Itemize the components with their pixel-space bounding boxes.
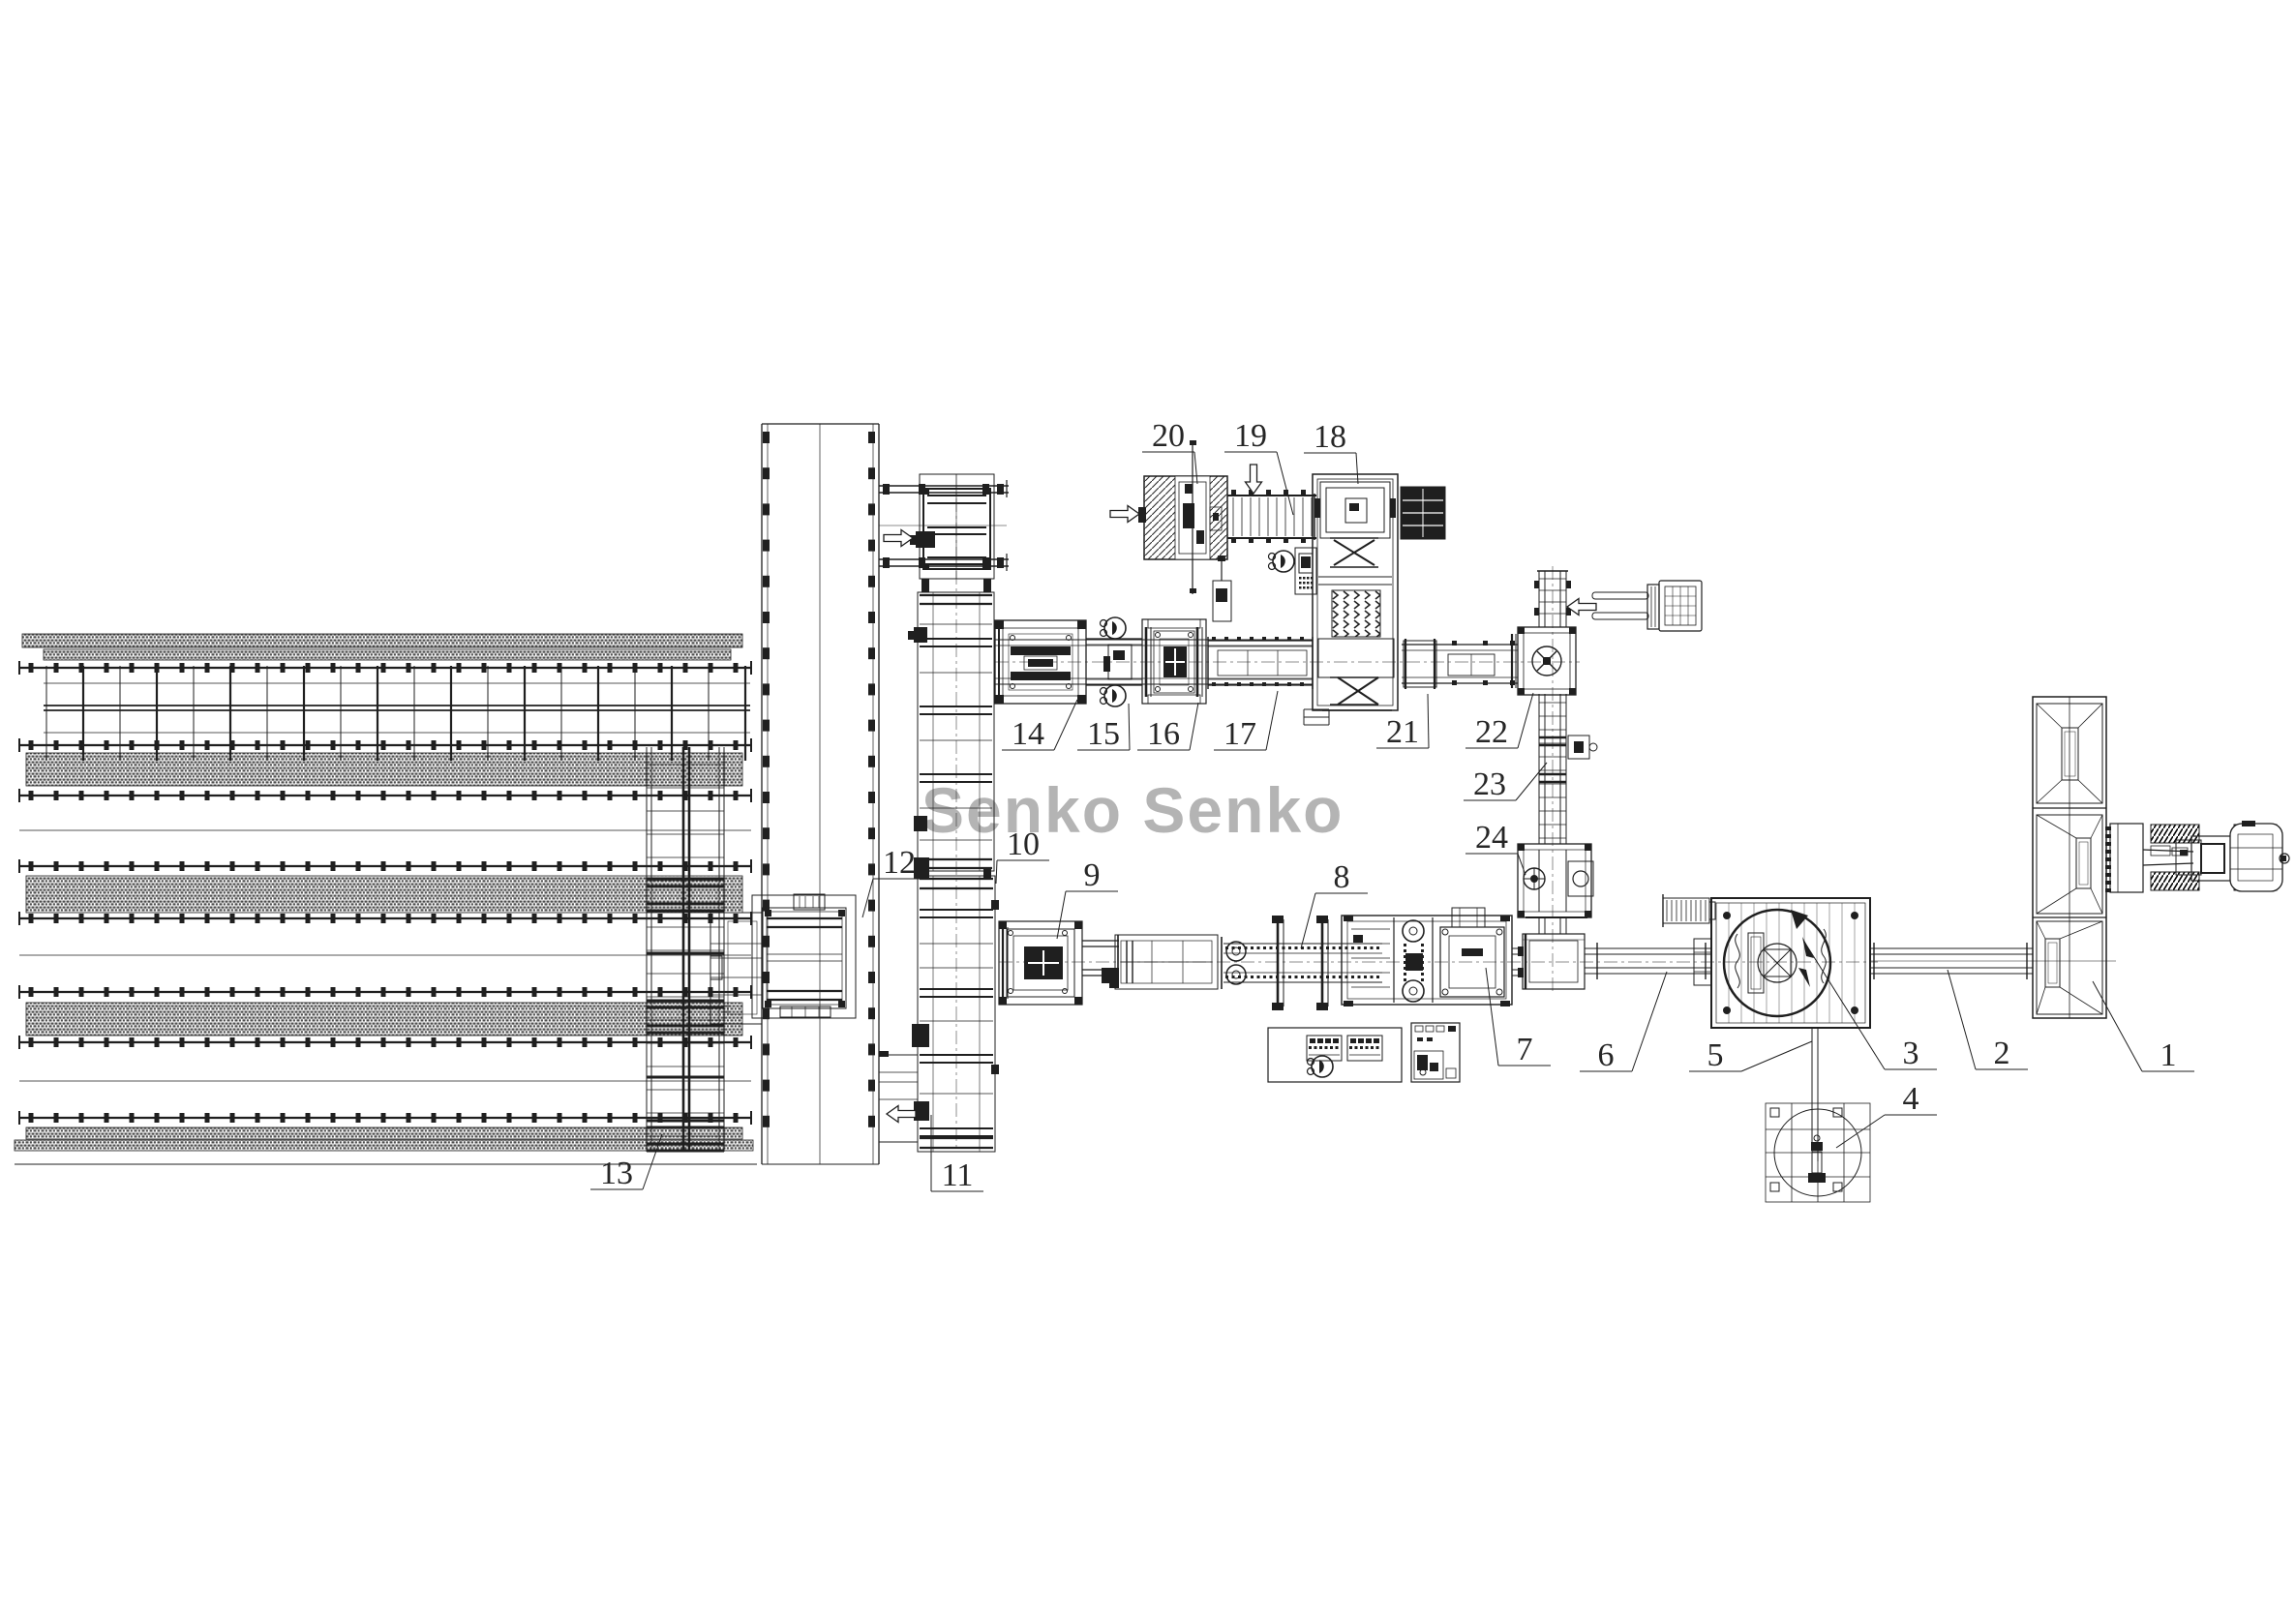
callout-20: 20 bbox=[1142, 418, 1197, 484]
machine-9 bbox=[999, 921, 1119, 1005]
callout-number: 21 bbox=[1386, 714, 1419, 750]
flow-arrow-icon bbox=[1110, 506, 1139, 523]
callout-number: 3 bbox=[1903, 1036, 1919, 1071]
machine-16 bbox=[1142, 619, 1206, 704]
callout-number: 9 bbox=[1084, 857, 1101, 893]
callout-number: 19 bbox=[1234, 418, 1267, 454]
rotary-transfer-22 bbox=[1512, 627, 1576, 695]
machine-7 bbox=[1342, 908, 1523, 1006]
callout-14: 14 bbox=[1002, 700, 1077, 752]
flow-arrow-icon bbox=[887, 1106, 916, 1123]
callout-number: 22 bbox=[1475, 714, 1508, 750]
conveyor-21 bbox=[1402, 639, 1518, 689]
factory-layout-drawing: 123456789101112131415161718192021222324 bbox=[0, 0, 2296, 1622]
operator-icon bbox=[1101, 617, 1127, 639]
storage-warehouse bbox=[15, 634, 757, 1164]
discharge-box bbox=[879, 1051, 918, 1142]
flow-arrow-icon bbox=[1246, 465, 1262, 494]
rack-piece bbox=[1663, 894, 1715, 927]
callout-17: 17 bbox=[1214, 691, 1278, 752]
pallet-segment bbox=[1115, 935, 1218, 989]
callout-number: 5 bbox=[1707, 1037, 1724, 1073]
control-pedestal bbox=[1213, 556, 1231, 621]
east-transfer-line bbox=[1402, 566, 1702, 995]
callout-21: 21 bbox=[1376, 694, 1429, 750]
callout-5: 5 bbox=[1689, 1037, 1812, 1073]
plc-cabinet bbox=[1411, 1023, 1460, 1082]
operator-icon bbox=[1269, 551, 1295, 572]
callout-23: 23 bbox=[1464, 763, 1547, 802]
callout-number: 4 bbox=[1903, 1081, 1919, 1117]
callout-number: 12 bbox=[883, 845, 916, 881]
callout-2: 2 bbox=[1948, 970, 2028, 1071]
process-row-lower bbox=[999, 908, 1878, 1010]
flow-arrow-icon bbox=[884, 530, 913, 547]
machine-18-aux-black-unit bbox=[1401, 487, 1445, 539]
aisle-corridor bbox=[762, 424, 879, 1164]
callout-24: 24 bbox=[1465, 820, 1526, 875]
vertical-conveyor-10-11 bbox=[879, 474, 1009, 1152]
callout-number: 6 bbox=[1598, 1037, 1615, 1073]
callout-19: 19 bbox=[1224, 418, 1293, 515]
infeed-cell-top bbox=[1138, 440, 1445, 725]
callout-number: 2 bbox=[1994, 1036, 2010, 1071]
callout-number: 11 bbox=[942, 1157, 974, 1193]
callout-number: 14 bbox=[1012, 716, 1044, 752]
callout-labels: 123456789101112131415161718192021222324 bbox=[590, 418, 2194, 1193]
machine-24 bbox=[1518, 844, 1593, 934]
forklift-icon bbox=[1592, 581, 1702, 631]
callout-number: 17 bbox=[1224, 716, 1256, 752]
callout-16: 16 bbox=[1137, 703, 1198, 752]
callout-11: 11 bbox=[931, 1115, 983, 1193]
machine-20 bbox=[1138, 440, 1227, 594]
roller-conveyor-19 bbox=[1227, 490, 1316, 543]
callout-number: 23 bbox=[1473, 766, 1506, 802]
callout-number: 10 bbox=[1007, 826, 1040, 862]
operators bbox=[1101, 551, 1334, 1077]
callout-number: 7 bbox=[1517, 1032, 1533, 1067]
callout-number: 16 bbox=[1147, 716, 1180, 752]
callout-4: 4 bbox=[1836, 1081, 1937, 1148]
transfer-column-13 bbox=[647, 747, 724, 1152]
machine-18 bbox=[1313, 474, 1398, 710]
vertical-conveyor-23 bbox=[1539, 566, 1597, 995]
flow-arrow-icon bbox=[1567, 599, 1596, 616]
callout-10: 10 bbox=[996, 826, 1049, 884]
callout-number: 20 bbox=[1152, 418, 1185, 454]
callout-1: 1 bbox=[2093, 981, 2194, 1073]
callout-15: 15 bbox=[1077, 704, 1130, 752]
chain-conveyor-8 bbox=[1222, 916, 1382, 1010]
process-row-upper bbox=[995, 556, 1580, 704]
rack-grid bbox=[44, 666, 750, 761]
callout-6: 6 bbox=[1580, 972, 1667, 1073]
hopper-bins bbox=[2033, 697, 2106, 1018]
operator-icon bbox=[1308, 1056, 1334, 1077]
cad-layout-canvas: Senko Senko 1234567891011121314151617181… bbox=[0, 0, 2296, 1622]
callout-number: 18 bbox=[1314, 419, 1346, 455]
corner-transfer bbox=[1518, 934, 1585, 989]
callout-number: 24 bbox=[1475, 820, 1508, 856]
callout-22: 22 bbox=[1465, 693, 1533, 750]
operator-icon bbox=[1101, 685, 1127, 706]
conveyor-17 bbox=[1208, 637, 1313, 689]
callout-number: 13 bbox=[600, 1156, 633, 1191]
machine-14 bbox=[995, 620, 1086, 704]
callout-number: 15 bbox=[1087, 716, 1120, 752]
operator-console bbox=[1268, 1028, 1402, 1082]
wheel-loader-icon bbox=[2105, 821, 2289, 892]
callout-number: 8 bbox=[1334, 859, 1350, 895]
floor-pad-4 bbox=[1766, 1103, 1870, 1202]
callout-9: 9 bbox=[1057, 857, 1118, 939]
callout-number: 1 bbox=[2160, 1037, 2177, 1073]
